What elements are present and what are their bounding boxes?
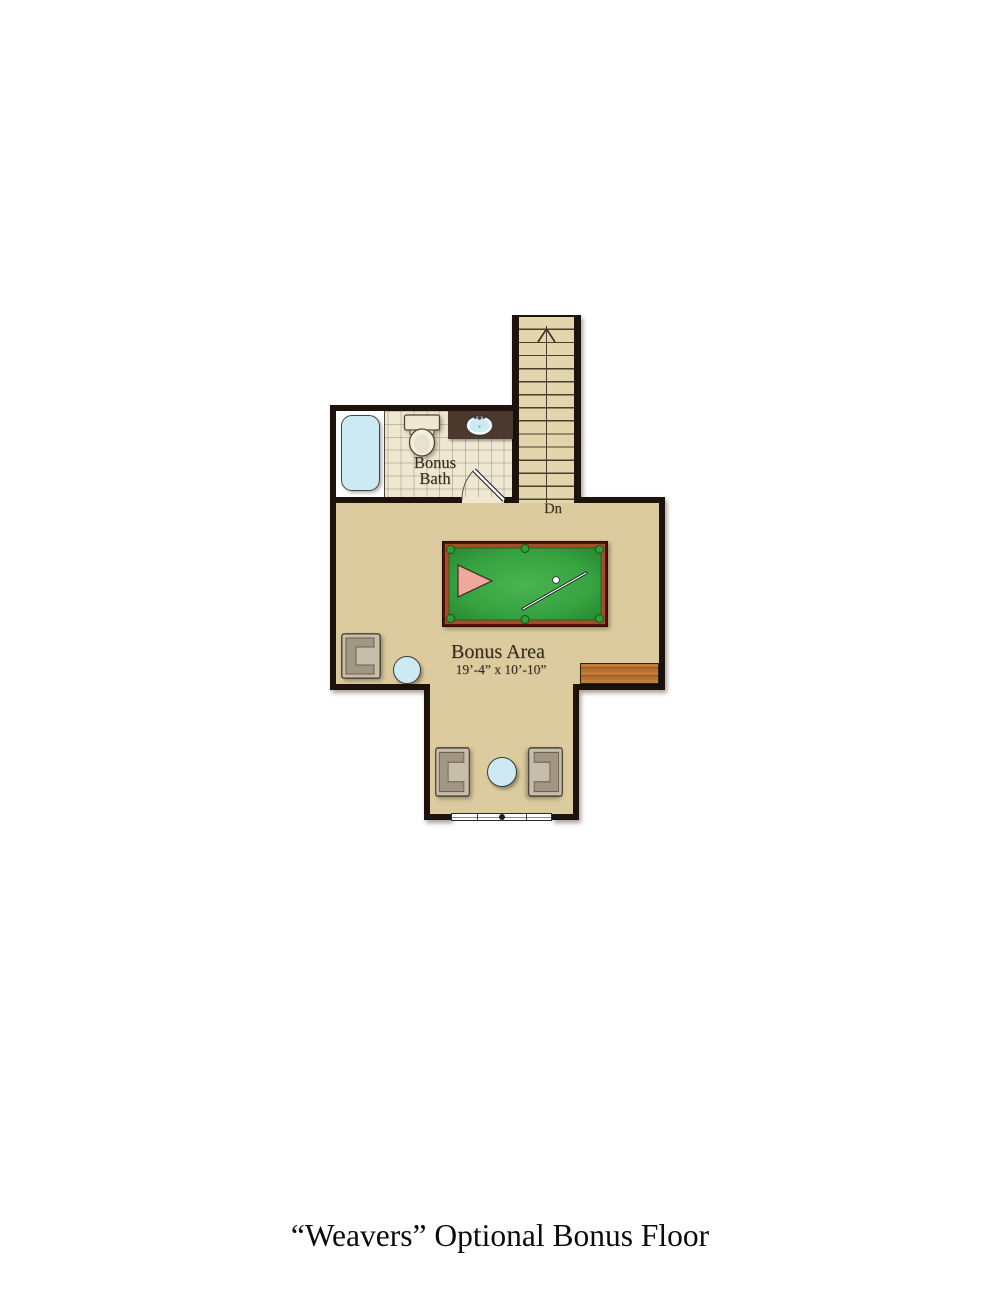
bath-label-line2: Bath <box>385 471 485 487</box>
floor-plan: Bonus Bath Dn Bonus Area 19’-4” x 10’-10… <box>330 315 665 827</box>
bonus-area-label: Bonus Area <box>398 641 598 664</box>
stair-direction-label: Dn <box>533 501 573 518</box>
bath-room-label: Bonus Bath <box>385 455 485 486</box>
plan-labels: Bonus Bath Dn Bonus Area 19’-4” x 10’-10… <box>330 315 665 827</box>
bonus-area-dimensions: 19’-4” x 10’-10” <box>401 662 601 678</box>
page-title: “Weavers” Optional Bonus Floor <box>0 1218 1000 1254</box>
page: { "page": { "background": "#ffffff", "ti… <box>0 0 1000 1294</box>
